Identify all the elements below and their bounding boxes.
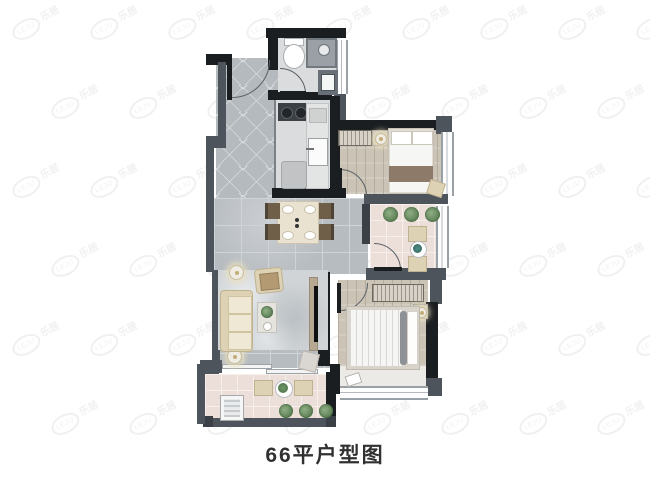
leju-logo-oval: LEJU <box>126 92 161 123</box>
leju-brand-text: 乐居 <box>37 159 62 182</box>
leju-logo-oval: LEJU <box>9 13 44 44</box>
leju-logo-oval: LEJU <box>555 171 590 202</box>
leju-logo-oval: LEJU <box>9 329 44 360</box>
leju-logo-oval: LEJU <box>516 92 551 123</box>
leju-logo-oval: LEJU <box>594 92 629 123</box>
leju-watermark: LEJU乐居 <box>438 398 494 440</box>
leju-brand-text: 乐居 <box>37 317 62 340</box>
leju-brand-text: 乐居 <box>349 1 374 24</box>
ceiling-light-1 <box>229 265 244 280</box>
leju-brand-text: 乐居 <box>193 1 218 24</box>
plate-4 <box>304 231 316 240</box>
floorplan-image: LEJU乐居LEJU乐居LEJU乐居LEJU乐居LEJU乐居LEJU乐居LEJU… <box>0 0 650 487</box>
leju-logo-oval: LEJU <box>555 329 590 360</box>
washing-machine-panel <box>224 399 240 417</box>
vanity-sink <box>321 74 335 91</box>
leju-logo-oval: LEJU <box>477 329 512 360</box>
leju-brand-text: 乐居 <box>544 80 569 103</box>
leju-watermark: LEJU乐居 <box>516 240 572 282</box>
leju-brand-text: 乐居 <box>466 238 491 261</box>
side-balcony-table-plant <box>413 244 422 253</box>
leju-brand-text: 乐居 <box>544 238 569 261</box>
leju-logo-oval: LEJU <box>87 13 122 44</box>
master-door-leaf <box>337 283 341 313</box>
table-item-2 <box>295 224 299 228</box>
bedroom2-pillow-2 <box>412 131 433 145</box>
leju-logo-oval: LEJU <box>360 92 395 123</box>
tv <box>314 286 318 342</box>
wall-kitchen-dining <box>272 188 346 198</box>
leju-brand-text: 乐居 <box>154 80 179 103</box>
wall-left-upper <box>218 62 226 142</box>
armchair-cushion <box>259 272 280 291</box>
plan-caption: 66平户型图 <box>0 439 650 469</box>
leju-watermark: LEJU乐居 <box>633 161 650 203</box>
sofa-cushion-1 <box>228 296 252 314</box>
leju-brand-text: 乐居 <box>271 1 296 24</box>
leju-brand-text: 乐居 <box>115 159 140 182</box>
leju-brand-text: 乐居 <box>583 1 608 24</box>
leju-brand-text: 乐居 <box>76 396 101 419</box>
leju-watermark: LEJU乐居 <box>9 161 65 203</box>
leju-logo-oval: LEJU <box>594 250 629 281</box>
side-balcony-door-arc <box>374 243 401 270</box>
leju-brand-text: 乐居 <box>115 317 140 340</box>
toilet <box>283 44 305 69</box>
side-balcony-chair-2 <box>408 256 427 272</box>
leju-brand-text: 乐居 <box>622 238 647 261</box>
leju-brand-text: 乐居 <box>115 1 140 24</box>
leju-watermark: LEJU乐居 <box>9 3 65 45</box>
leju-brand-text: 乐居 <box>622 396 647 419</box>
wall-corner-br <box>426 378 442 396</box>
leju-watermark: LEJU乐居 <box>633 3 650 45</box>
leju-watermark: LEJU乐居 <box>555 319 611 361</box>
master-pillows <box>407 311 418 365</box>
leju-brand-text: 乐居 <box>505 1 530 24</box>
leju-watermark: LEJU乐居 <box>399 3 455 45</box>
balcony-slider-panel1 <box>222 364 272 369</box>
stove-burner-left <box>281 107 293 119</box>
leju-watermark: LEJU乐居 <box>87 319 143 361</box>
bedroom2-wardrobe <box>338 130 372 146</box>
leju-watermark: LEJU乐居 <box>477 319 533 361</box>
leju-logo-oval: LEJU <box>87 171 122 202</box>
leju-logo-oval: LEJU <box>516 408 551 439</box>
bedroom2-door-leaf <box>338 168 342 197</box>
leju-logo-oval: LEJU <box>126 250 161 281</box>
leju-brand-text: 乐居 <box>76 238 101 261</box>
plate-3 <box>282 231 294 240</box>
leju-logo-oval: LEJU <box>360 408 395 439</box>
leju-watermark: LEJU乐居 <box>360 82 416 124</box>
leju-logo-oval: LEJU <box>633 13 650 44</box>
wall-left-mid <box>206 146 214 272</box>
wall-balcony-left <box>362 204 370 244</box>
side-balcony-plant-2 <box>404 207 419 222</box>
leju-watermark: LEJU乐居 <box>555 161 611 203</box>
leju-brand-text: 乐居 <box>544 396 569 419</box>
side-balcony-plant-1 <box>383 207 398 222</box>
dining-chair-4 <box>319 224 334 240</box>
bottom-balcony-plant-3 <box>319 404 333 418</box>
plate-2 <box>304 205 316 214</box>
sofa-cushion-2 <box>228 314 252 332</box>
entry-door-arc <box>232 60 270 98</box>
bottom-balcony-table-plant <box>278 383 288 393</box>
plate-1 <box>282 205 294 214</box>
leju-brand-text: 乐居 <box>427 1 452 24</box>
leju-watermark: LEJU乐居 <box>48 82 104 124</box>
leju-watermark: LEJU乐居 <box>126 240 182 282</box>
leju-brand-text: 乐居 <box>505 317 530 340</box>
leju-watermark: LEJU乐居 <box>126 398 182 440</box>
leju-brand-text: 乐居 <box>583 317 608 340</box>
leju-brand-text: 乐居 <box>622 80 647 103</box>
leju-logo-oval: LEJU <box>516 250 551 281</box>
leju-logo-oval: LEJU <box>48 408 83 439</box>
bottom-balcony-chair-2 <box>294 380 313 396</box>
leju-brand-text: 乐居 <box>154 396 179 419</box>
leju-watermark: LEJU乐居 <box>633 319 650 361</box>
side-balcony-door-leaf <box>374 267 402 271</box>
leju-brand-text: 乐居 <box>37 1 62 24</box>
leju-logo-oval: LEJU <box>87 329 122 360</box>
leju-brand-text: 乐居 <box>388 80 413 103</box>
leju-watermark: LEJU乐居 <box>87 161 143 203</box>
bathroom-door-leaf <box>280 91 306 95</box>
side-balcony-chair-1 <box>408 226 427 242</box>
sink-faucet <box>306 148 314 150</box>
leju-logo-oval: LEJU <box>165 13 200 44</box>
leju-watermark: LEJU乐居 <box>360 398 416 440</box>
leju-logo-oval: LEJU <box>126 408 161 439</box>
leju-watermark: LEJU乐居 <box>126 82 182 124</box>
master-wardrobe <box>372 284 424 302</box>
leju-brand-text: 乐居 <box>583 159 608 182</box>
wall-master-right-top <box>430 278 442 304</box>
master-duvet <box>350 310 402 366</box>
leju-logo-oval: LEJU <box>165 329 200 360</box>
leju-watermark: LEJU乐居 <box>87 3 143 45</box>
wall-left-step <box>197 364 219 374</box>
bottom-balcony-plant-1 <box>279 404 293 418</box>
counter-board <box>309 108 327 123</box>
leju-watermark: LEJU乐居 <box>516 398 572 440</box>
leju-logo-oval: LEJU <box>633 171 650 202</box>
leju-watermark: LEJU乐居 <box>9 319 65 361</box>
bottom-balcony-plant-2 <box>299 404 313 418</box>
leju-logo-oval: LEJU <box>165 171 200 202</box>
bedroom2-bed-runner <box>389 166 433 182</box>
leju-watermark: LEJU乐居 <box>48 240 104 282</box>
leju-watermark: LEJU乐居 <box>594 240 650 282</box>
kitchen-open-edge <box>274 100 276 188</box>
leju-logo-oval: LEJU <box>9 171 44 202</box>
leju-watermark: LEJU乐居 <box>165 3 221 45</box>
leju-logo-oval: LEJU <box>555 13 590 44</box>
leju-watermark: LEJU乐居 <box>594 82 650 124</box>
bedroom2-lamp <box>375 133 387 145</box>
leju-logo-oval: LEJU <box>477 13 512 44</box>
bedroom2-door-arc <box>340 169 367 196</box>
wall-bath-top <box>266 28 346 38</box>
leju-logo-oval: LEJU <box>633 329 650 360</box>
leju-logo-oval: LEJU <box>438 408 473 439</box>
dining-chair-3 <box>319 203 334 219</box>
leju-logo-oval: LEJU <box>48 250 83 281</box>
side-balcony-plant-3 <box>425 207 440 222</box>
table-item-1 <box>295 218 299 222</box>
leju-brand-text: 乐居 <box>466 396 491 419</box>
showerhead-icon <box>318 44 330 56</box>
leju-logo-oval: LEJU <box>594 408 629 439</box>
master-bay-window <box>340 386 428 400</box>
dining-chair-1 <box>265 203 280 219</box>
fridge <box>281 161 307 189</box>
coffee-table-cup <box>263 322 272 331</box>
dining-chair-2 <box>265 224 280 240</box>
leju-logo-oval: LEJU <box>399 13 434 44</box>
bedroom2-pillow-1 <box>391 131 412 145</box>
leju-watermark: LEJU乐居 <box>48 398 104 440</box>
wall-balcony2-left <box>197 372 205 424</box>
leju-brand-text: 乐居 <box>505 159 530 182</box>
leju-logo-oval: LEJU <box>48 92 83 123</box>
leju-brand-text: 乐居 <box>76 80 101 103</box>
leju-watermark: LEJU乐居 <box>477 3 533 45</box>
leju-brand-text: 乐居 <box>154 238 179 261</box>
leju-brand-text: 乐居 <box>466 80 491 103</box>
coffee-table-plant <box>261 306 273 318</box>
leju-watermark: LEJU乐居 <box>594 398 650 440</box>
bottom-balcony-chair-1 <box>254 380 273 396</box>
leju-watermark: LEJU乐居 <box>555 3 611 45</box>
master-blanket-roll <box>400 311 407 365</box>
leju-watermark: LEJU乐居 <box>516 82 572 124</box>
sofa-cushion-3 <box>228 332 252 350</box>
leju-watermark: LEJU乐居 <box>477 161 533 203</box>
kitchen-sink <box>308 138 328 166</box>
leju-logo-oval: LEJU <box>477 171 512 202</box>
